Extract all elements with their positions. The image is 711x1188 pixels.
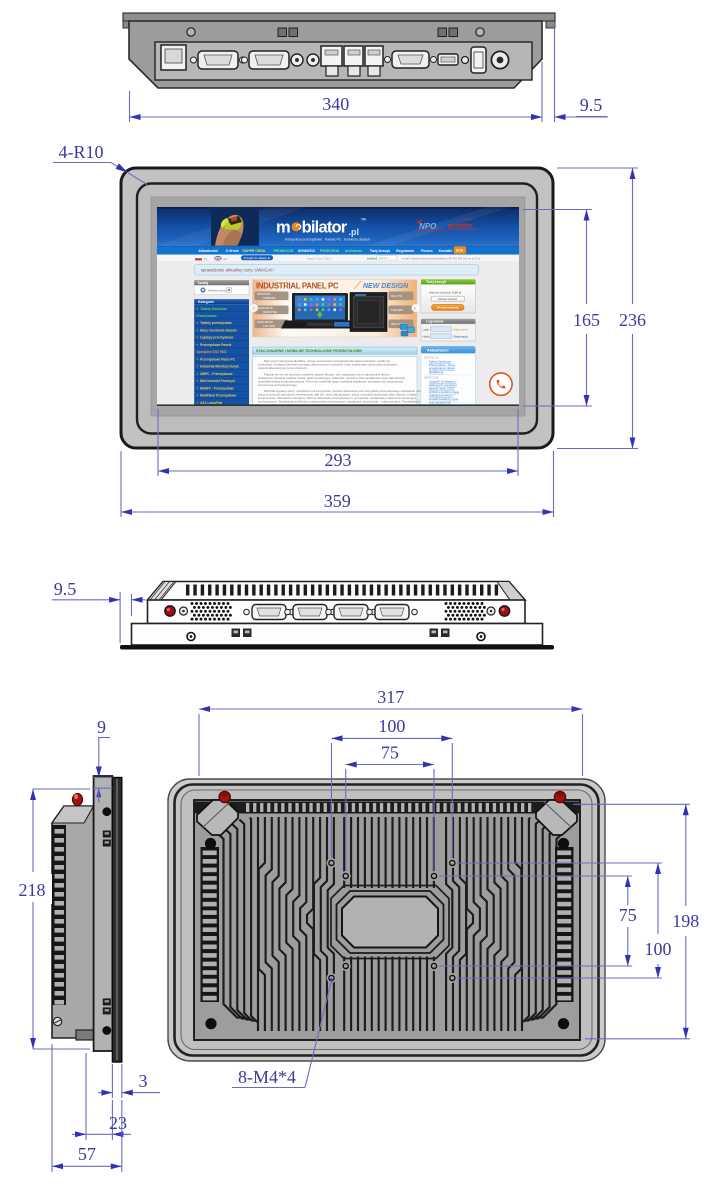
svg-text:»: » [197,336,199,340]
svg-text:EN: EN [224,257,228,261]
svg-text:LAN USB: LAN USB [263,324,275,328]
svg-text:Industrial Monitory Dotyk.: Industrial Monitory Dotyk. [200,365,239,369]
svg-text:MiniPC - Przemysłowe: MiniPC - Przemysłowe [200,386,234,390]
svg-text:PROMOCJE: PROMOCJE [274,249,295,253]
svg-text:Mobilator.pl: Mobilator.pl [429,370,444,374]
svg-text:4-R10: 4-R10 [59,142,104,162]
svg-text:57: 57 [78,1144,96,1164]
svg-text:»: » [197,321,199,325]
svg-text:Login:: Login: [423,328,431,332]
svg-text:Twój koszyk: Twój koszyk [370,249,390,253]
svg-text:NEW DESIGN: NEW DESIGN [363,283,409,290]
svg-text:»: » [197,343,199,347]
svg-text:218: 218 [19,880,46,900]
svg-text:e-mail i infolinia techniczna/: e-mail i infolinia techniczna/handlowa +… [402,256,481,260]
svg-text:Specjalne SSD HDD: Specjalne SSD HDD [197,350,228,354]
svg-text:Komputery przemysłowe Panele: Komputery przemysłowe Panele PC Kolektor… [285,237,370,241]
svg-text:Kategorie: Kategorie [198,300,214,304]
svg-text:UMPC - Przemysłowe: UMPC - Przemysłowe [200,372,233,376]
svg-text:317: 317 [377,687,404,707]
svg-text:Zobacz koszyk: Zobacz koszyk [438,297,458,301]
svg-text:»: » [197,365,199,369]
svg-text:Aktualności: Aktualności [198,249,218,253]
svg-text:AXX LotusPad: AXX LotusPad [200,401,222,405]
svg-text:Przechowalnia: Przechowalnia [437,306,459,310]
svg-text:PL: PL [204,257,208,261]
svg-text:HDMI RS232: HDMI RS232 [257,320,273,324]
svg-text:PRZECENA: PRZECENA [320,249,340,253]
svg-text:198: 198 [672,911,699,931]
svg-text:23: 23 [109,1113,127,1133]
svg-text:STACJONARNE I MOBILNE TECHNOLO: STACJONARNE I MOBILNE TECHNOLOGIE PRZEMY… [256,349,362,353]
svg-text:Tablety przemysłowe: Tablety przemysłowe [200,321,232,325]
svg-text:RESISTIVE: RESISTIVE [263,310,277,314]
svg-text:oraz sprawdzenie: oraz sprawdzenie [429,400,451,404]
svg-text:»: » [197,401,199,405]
svg-text:8-M4*4: 8-M4*4 [238,1067,296,1087]
svg-text:Hasło:: Hasło: [423,335,431,339]
svg-text:WINDOWS: WINDOWS [257,292,271,296]
svg-text:TM: TM [361,218,366,222]
svg-text:»: » [197,394,199,398]
svg-text:100: 100 [378,716,405,736]
svg-text:wybierz...: wybierz... [379,256,390,260]
svg-text:SOS: SOS [456,249,464,253]
svg-text:75: 75 [381,743,399,763]
svg-text:.pl: .pl [349,227,360,237]
svg-text:Przemysłowe: Przemysłowe [197,314,217,318]
svg-text:Tablety Dotykowe: Tablety Dotykowe [200,307,227,311]
svg-text:Kasy i terminale danych: Kasy i terminale danych [200,328,237,332]
svg-text:Twój koszyk: Twój koszyk [426,280,446,284]
svg-text:SUPER CENA: SUPER CENA [242,249,265,253]
svg-text:9.5: 9.5 [580,95,603,115]
svg-text:NPO: NPO [419,222,437,231]
svg-text:»: » [197,307,199,311]
svg-text:»: » [197,379,199,383]
svg-text:dorzeczowa technologicznego.: dorzeczowa technologicznego. [258,383,298,387]
svg-text:INDUSTRIAL PANEL PC: INDUSTRIAL PANEL PC [256,281,339,290]
svg-text:359: 359 [324,491,351,511]
svg-text:Załóż konto: Załóż konto [454,328,468,332]
svg-text:Przejdź do sklepu ►: Przejdź do sklepu ► [244,256,271,260]
svg-text:»: » [197,328,199,332]
svg-text:bilator: bilator [302,219,348,237]
svg-text:warunki laboratoryjnie przemys: warunki laboratoryjnie przemyslowych. [258,366,308,370]
svg-text:Przemysłowe Panele: Przemysłowe Panele [200,343,232,347]
svg-text:Aktualności: Aktualności [427,348,449,352]
svg-text:Pomoc: Pomoc [421,249,433,253]
svg-text:Archiwum: Archiwum [345,249,362,253]
svg-text:9.5: 9.5 [54,579,77,599]
svg-text:»: » [197,357,199,361]
svg-text:236: 236 [619,310,646,330]
svg-text:koszyk: 0 szt. 0.00 zl: koszyk: 0 szt. 0.00 zl [307,256,331,260]
svg-text:Rejestracja: Rejestracja [454,335,469,339]
svg-text:165: 165 [573,310,600,330]
svg-text:MIL-STD: MIL-STD [391,294,402,298]
svg-text:ANDROID: ANDROID [263,296,275,300]
svg-text:NOWOŚCI: NOWOŚCI [298,248,315,253]
svg-text:sprawdzenie aktualnej ceny. UW: sprawdzenie aktualnej ceny. UWAGA!!! [201,267,274,272]
svg-text:293: 293 [325,450,352,470]
svg-text:75: 75 [619,905,637,925]
svg-text:Wartość koszyka: 0.00 zł: Wartość koszyka: 0.00 zł [429,290,461,294]
svg-text:100: 100 [645,939,672,959]
svg-text:Kontakt: Kontakt [439,249,453,253]
svg-text:FANLESS: FANLESS [391,308,403,312]
svg-text:Wybierz język: Wybierz język [208,288,227,292]
svg-text:Laptopy przemysłowe: Laptopy przemysłowe [200,336,234,340]
svg-text:Regulamin: Regulamin [396,249,414,253]
svg-text:9: 9 [97,717,106,737]
svg-text:m: m [276,219,290,237]
svg-text:CAPACITIVE: CAPACITIVE [257,306,273,310]
svg-text:»: » [197,386,199,390]
svg-text:NewPanel Przemysłowe: NewPanel Przemysłowe [200,394,236,398]
svg-text:340: 340 [322,94,349,114]
svg-text:Logowanie: Logowanie [426,320,444,324]
svg-text:»: » [197,372,199,376]
svg-text:3: 3 [139,1071,148,1091]
svg-text:GROUP: GROUP [462,218,473,222]
svg-text:Szukaj: Szukaj [198,281,209,285]
svg-text:Przemysłowe Panel PC: Przemysłowe Panel PC [200,357,236,361]
svg-text:Mini komórki Przemysł.: Mini komórki Przemysł. [200,379,236,383]
svg-text:portable: portable [448,224,472,230]
svg-text:O firmie: O firmie [226,249,239,253]
